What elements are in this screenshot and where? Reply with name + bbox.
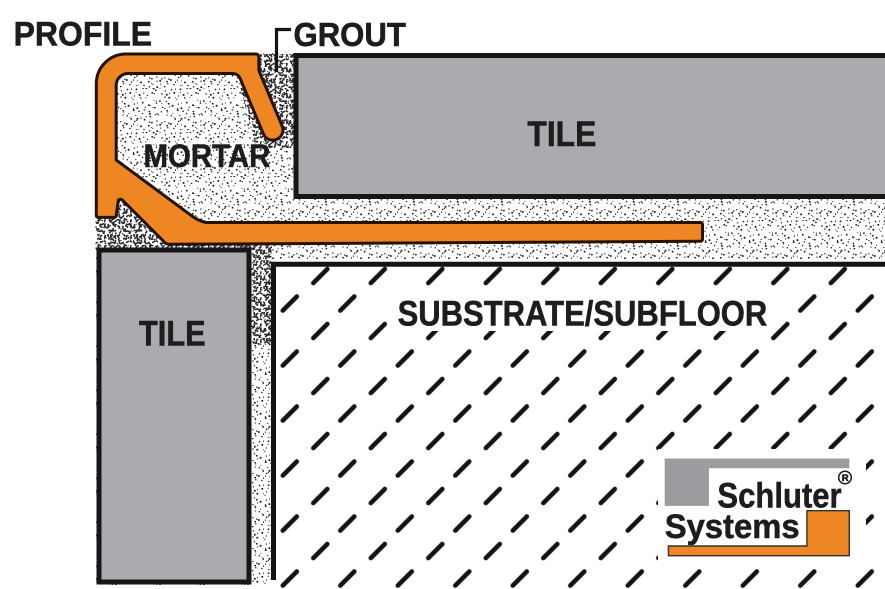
- svg-text:R: R: [842, 473, 849, 484]
- svg-text:PROFILE: PROFILE: [14, 15, 153, 53]
- svg-text:GROUT: GROUT: [294, 16, 407, 53]
- svg-text:TILE: TILE: [139, 314, 206, 353]
- svg-text:MORTAR: MORTAR: [144, 138, 271, 175]
- svg-text:SUBSTRATE/SUBFLOOR: SUBSTRATE/SUBFLOOR: [398, 294, 768, 333]
- svg-text:TILE: TILE: [527, 116, 596, 155]
- svg-text:Systems: Systems: [665, 507, 800, 546]
